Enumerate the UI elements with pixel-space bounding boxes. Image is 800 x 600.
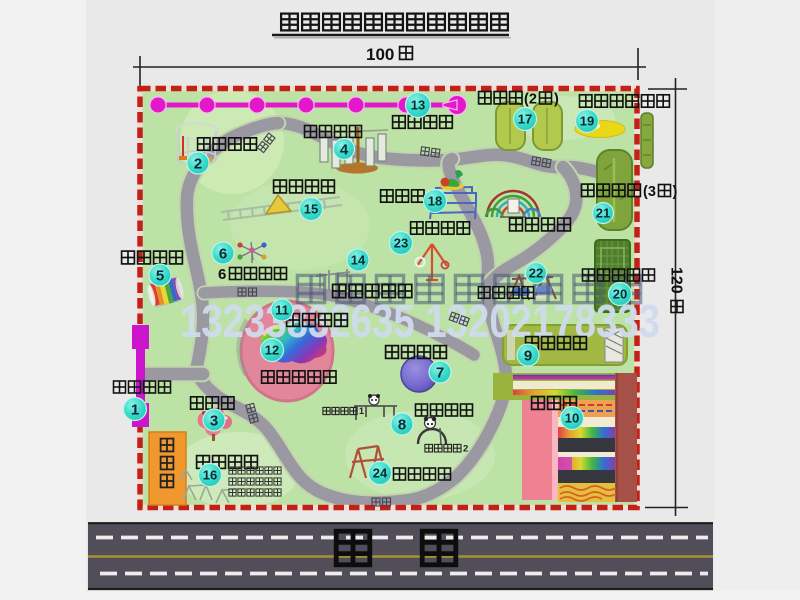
svg-text:6: 6 (219, 245, 227, 262)
svg-text:12: 12 (265, 343, 279, 358)
svg-text:15: 15 (304, 202, 318, 217)
svg-text:20: 20 (613, 287, 627, 302)
svg-text:7: 7 (436, 364, 444, 381)
svg-text:100: 100 (366, 45, 394, 64)
svg-text:13233832635 13202178333: 13233832635 13202178333 (180, 295, 660, 347)
svg-text:120: 120 (668, 267, 685, 294)
svg-text:4: 4 (340, 141, 349, 158)
svg-text:(3: (3 (643, 184, 656, 200)
svg-text:2: 2 (463, 444, 468, 455)
svg-text:6: 6 (218, 266, 226, 283)
svg-text:24: 24 (373, 466, 388, 481)
svg-text:10: 10 (565, 411, 579, 426)
svg-text:): ) (554, 92, 559, 108)
svg-text:3: 3 (210, 412, 218, 429)
svg-text:5: 5 (156, 267, 164, 284)
svg-text:8: 8 (398, 416, 406, 433)
svg-text:14: 14 (351, 253, 366, 268)
svg-text:19: 19 (580, 114, 594, 129)
svg-text:16: 16 (203, 468, 217, 483)
svg-text:13: 13 (411, 98, 425, 113)
svg-text:22: 22 (529, 266, 543, 281)
svg-text:): ) (673, 184, 678, 200)
svg-text:(2: (2 (524, 92, 537, 108)
svg-text:18: 18 (428, 194, 442, 209)
svg-text:1: 1 (131, 401, 139, 418)
svg-text:1: 1 (359, 406, 364, 416)
svg-text:11: 11 (275, 303, 289, 318)
svg-text:2: 2 (194, 155, 202, 172)
svg-text:9: 9 (524, 347, 532, 364)
svg-text:17: 17 (518, 112, 532, 127)
svg-text:21: 21 (596, 206, 610, 221)
svg-text:23: 23 (394, 236, 408, 251)
